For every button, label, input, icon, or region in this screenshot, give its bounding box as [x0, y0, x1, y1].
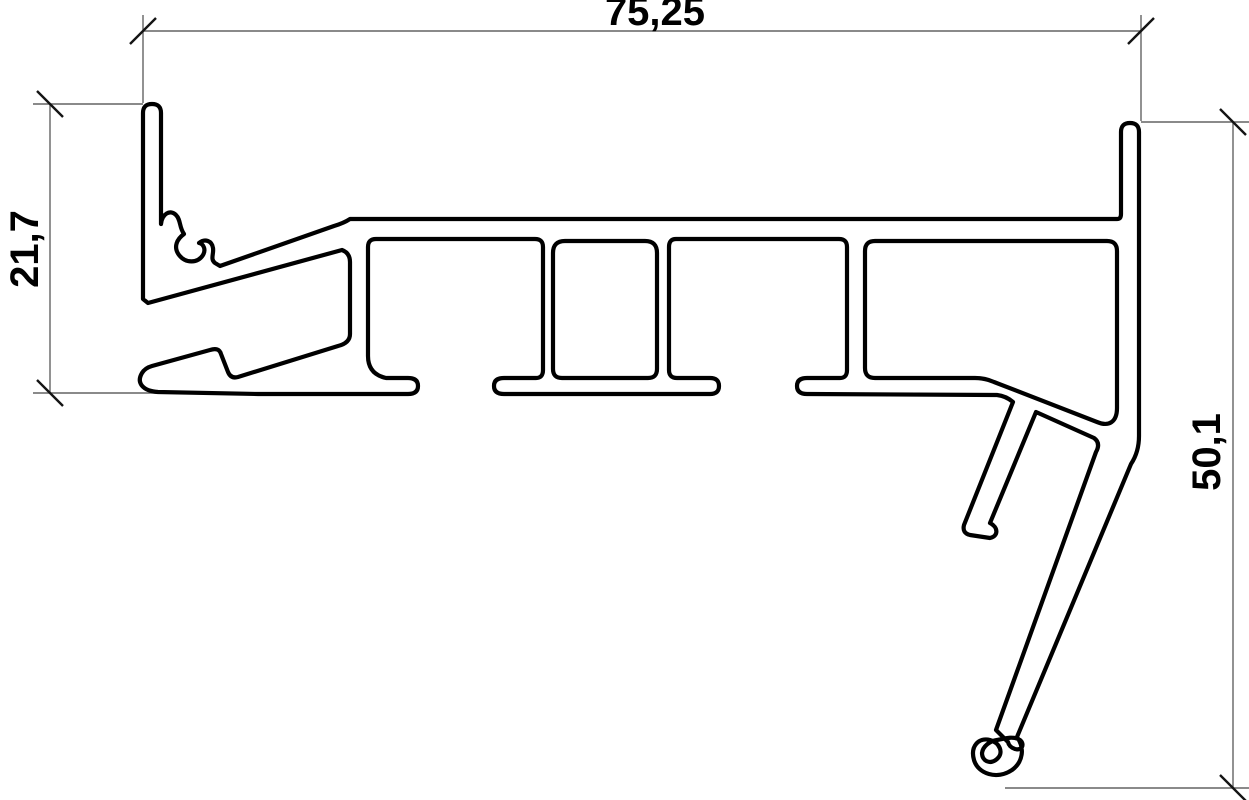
dimension-label-right-height: 50,1: [1185, 413, 1229, 491]
dimension-label-top-width: 75,25: [605, 0, 705, 34]
drawing-sheet: 75,25 21,7 50,1: [0, 0, 1249, 800]
sheet-background: [0, 0, 1249, 800]
dimension-label-left-height: 21,7: [3, 210, 47, 288]
technical-drawing: 75,25 21,7 50,1: [0, 0, 1249, 800]
